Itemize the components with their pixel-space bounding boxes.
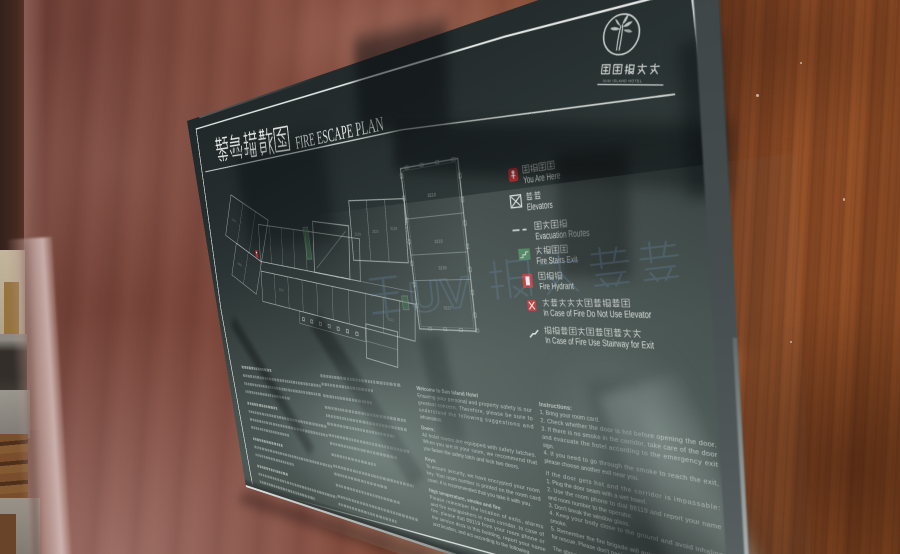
svg-text:3213: 3213 [427,191,437,199]
svg-text:3203: 3203 [231,217,236,224]
svg-text:SUN ISLAND HOTEL: SUN ISLAND HOTEL [602,78,642,85]
svg-text:UV: UV [406,267,473,323]
